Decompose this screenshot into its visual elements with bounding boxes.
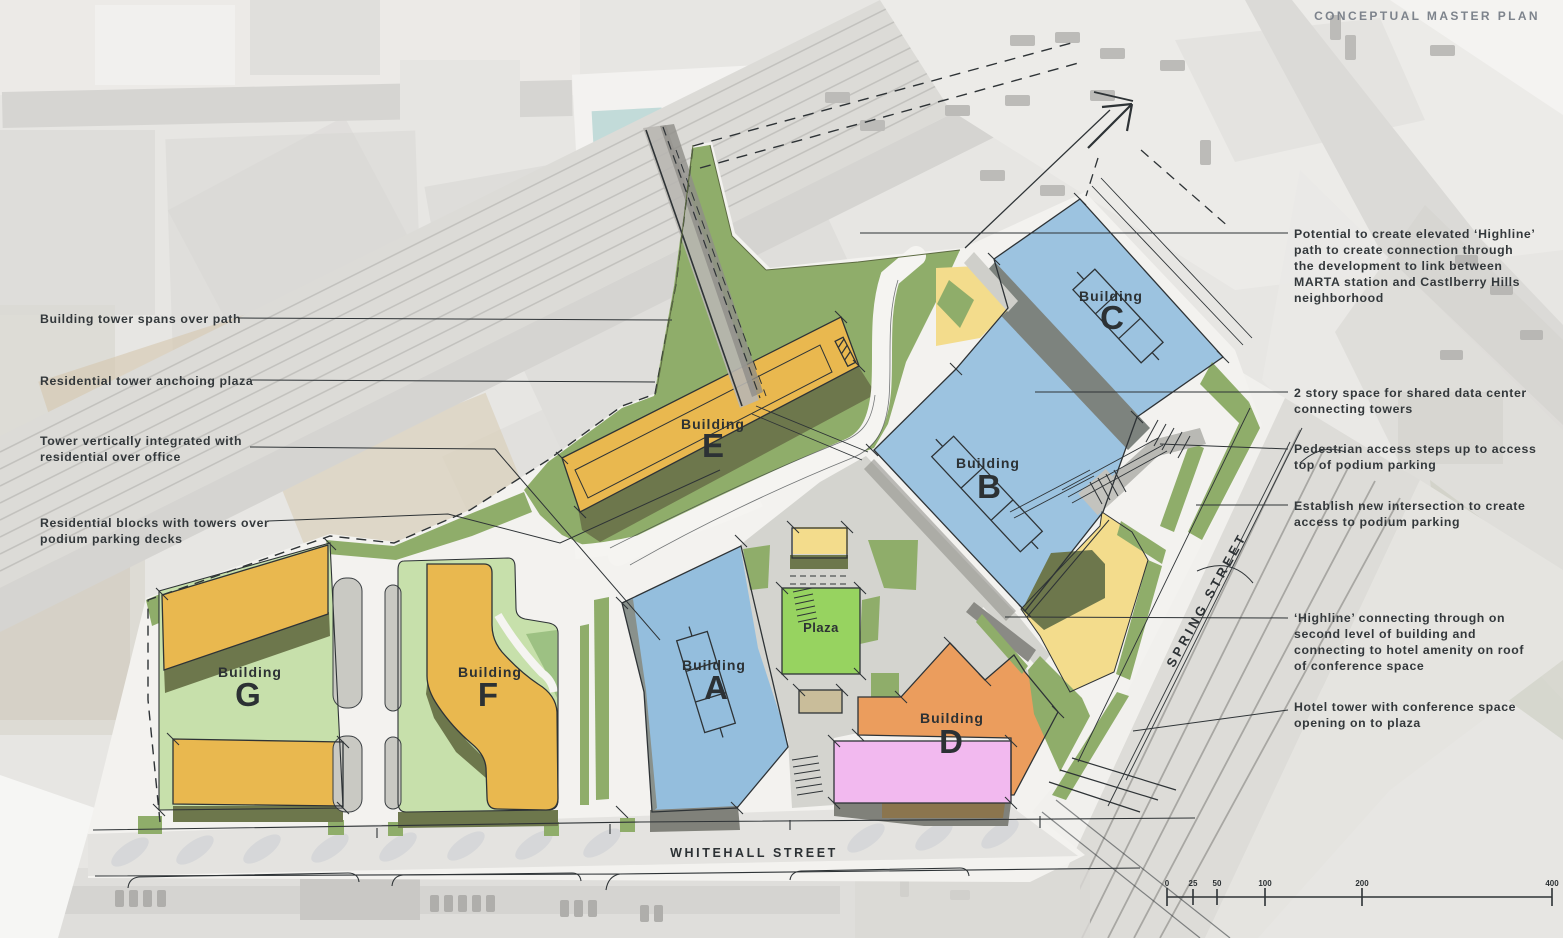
svg-text:‘Highline’ connecting through: ‘Highline’ connecting through on (1294, 611, 1505, 625)
svg-text:opening on to plaza: opening on to plaza (1294, 716, 1421, 730)
svg-text:0: 0 (1165, 879, 1170, 888)
svg-text:connecting towers: connecting towers (1294, 402, 1413, 416)
svg-text:A: A (704, 669, 728, 706)
svg-text:Plaza: Plaza (803, 620, 839, 635)
svg-text:connecting to hotel amenity on: connecting to hotel amenity on roof (1294, 643, 1524, 657)
svg-text:top of podium parking: top of podium parking (1294, 458, 1436, 472)
svg-text:WHITEHALL STREET: WHITEHALL STREET (670, 846, 838, 860)
svg-text:G: G (235, 676, 261, 713)
svg-text:neighborhood: neighborhood (1294, 291, 1384, 305)
svg-text:400: 400 (1545, 879, 1559, 888)
svg-text:Establish new intersection to: Establish new intersection to create (1294, 499, 1525, 513)
svg-text:Potential to create elevated ‘: Potential to create elevated ‘Highline’ (1294, 227, 1535, 241)
svg-text:Hotel tower with conference sp: Hotel tower with conference space (1294, 700, 1516, 714)
svg-text:200: 200 (1355, 879, 1369, 888)
svg-text:D: D (939, 723, 963, 760)
svg-text:path to create connection thro: path to create connection through (1294, 243, 1513, 257)
svg-text:F: F (478, 676, 498, 713)
svg-text:of conference space: of conference space (1294, 659, 1424, 673)
svg-text:CONCEPTUAL MASTER PLAN: CONCEPTUAL MASTER PLAN (1314, 9, 1540, 23)
svg-text:Residential tower anchoing pla: Residential tower anchoing plaza (40, 374, 253, 388)
svg-text:the development to link betwee: the development to link between (1294, 259, 1503, 273)
svg-text:50: 50 (1213, 879, 1222, 888)
svg-text:MARTA station and Castlberry H: MARTA station and Castlberry Hills (1294, 275, 1520, 289)
svg-text:25: 25 (1189, 879, 1198, 888)
svg-text:second level of building and: second level of building and (1294, 627, 1476, 641)
svg-text:2 story space for shared data: 2 story space for shared data center (1294, 386, 1527, 400)
svg-text:Building tower spans over path: Building tower spans over path (40, 312, 241, 326)
svg-text:podium parking decks: podium parking decks (40, 532, 183, 546)
svg-text:Pedestrian access steps up to: Pedestrian access steps up to access (1294, 442, 1536, 456)
svg-text:Tower vertically integrated wi: Tower vertically integrated with (40, 434, 242, 448)
svg-text:100: 100 (1258, 879, 1272, 888)
svg-text:E: E (702, 427, 724, 464)
svg-text:residential over office: residential over office (40, 450, 181, 464)
svg-text:B: B (977, 468, 1001, 505)
svg-text:C: C (1100, 299, 1124, 336)
svg-text:access to podium parking: access to podium parking (1294, 515, 1460, 529)
svg-text:Residential blocks with towers: Residential blocks with towers over (40, 516, 269, 530)
